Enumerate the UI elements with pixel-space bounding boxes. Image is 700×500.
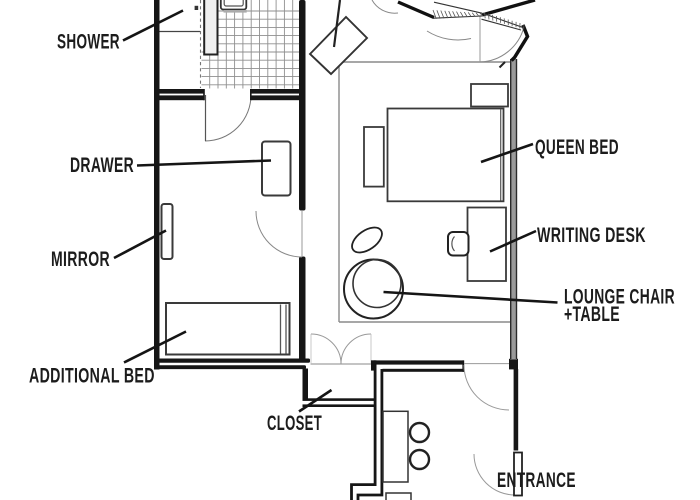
svg-text:ENTRANCE: ENTRANCE xyxy=(497,468,576,492)
svg-text:ADDITIONAL BED: ADDITIONAL BED xyxy=(29,364,155,387)
svg-text:SHOWER: SHOWER xyxy=(57,29,120,53)
svg-text:WRITING DESK: WRITING DESK xyxy=(537,223,646,246)
svg-text:+TABLE: +TABLE xyxy=(564,302,620,326)
svg-text:DRAWER: DRAWER xyxy=(70,153,134,177)
svg-text:QUEEN BED: QUEEN BED xyxy=(535,135,619,159)
svg-text:MIRROR: MIRROR xyxy=(51,247,110,271)
svg-text:CLOSET: CLOSET xyxy=(267,411,322,435)
